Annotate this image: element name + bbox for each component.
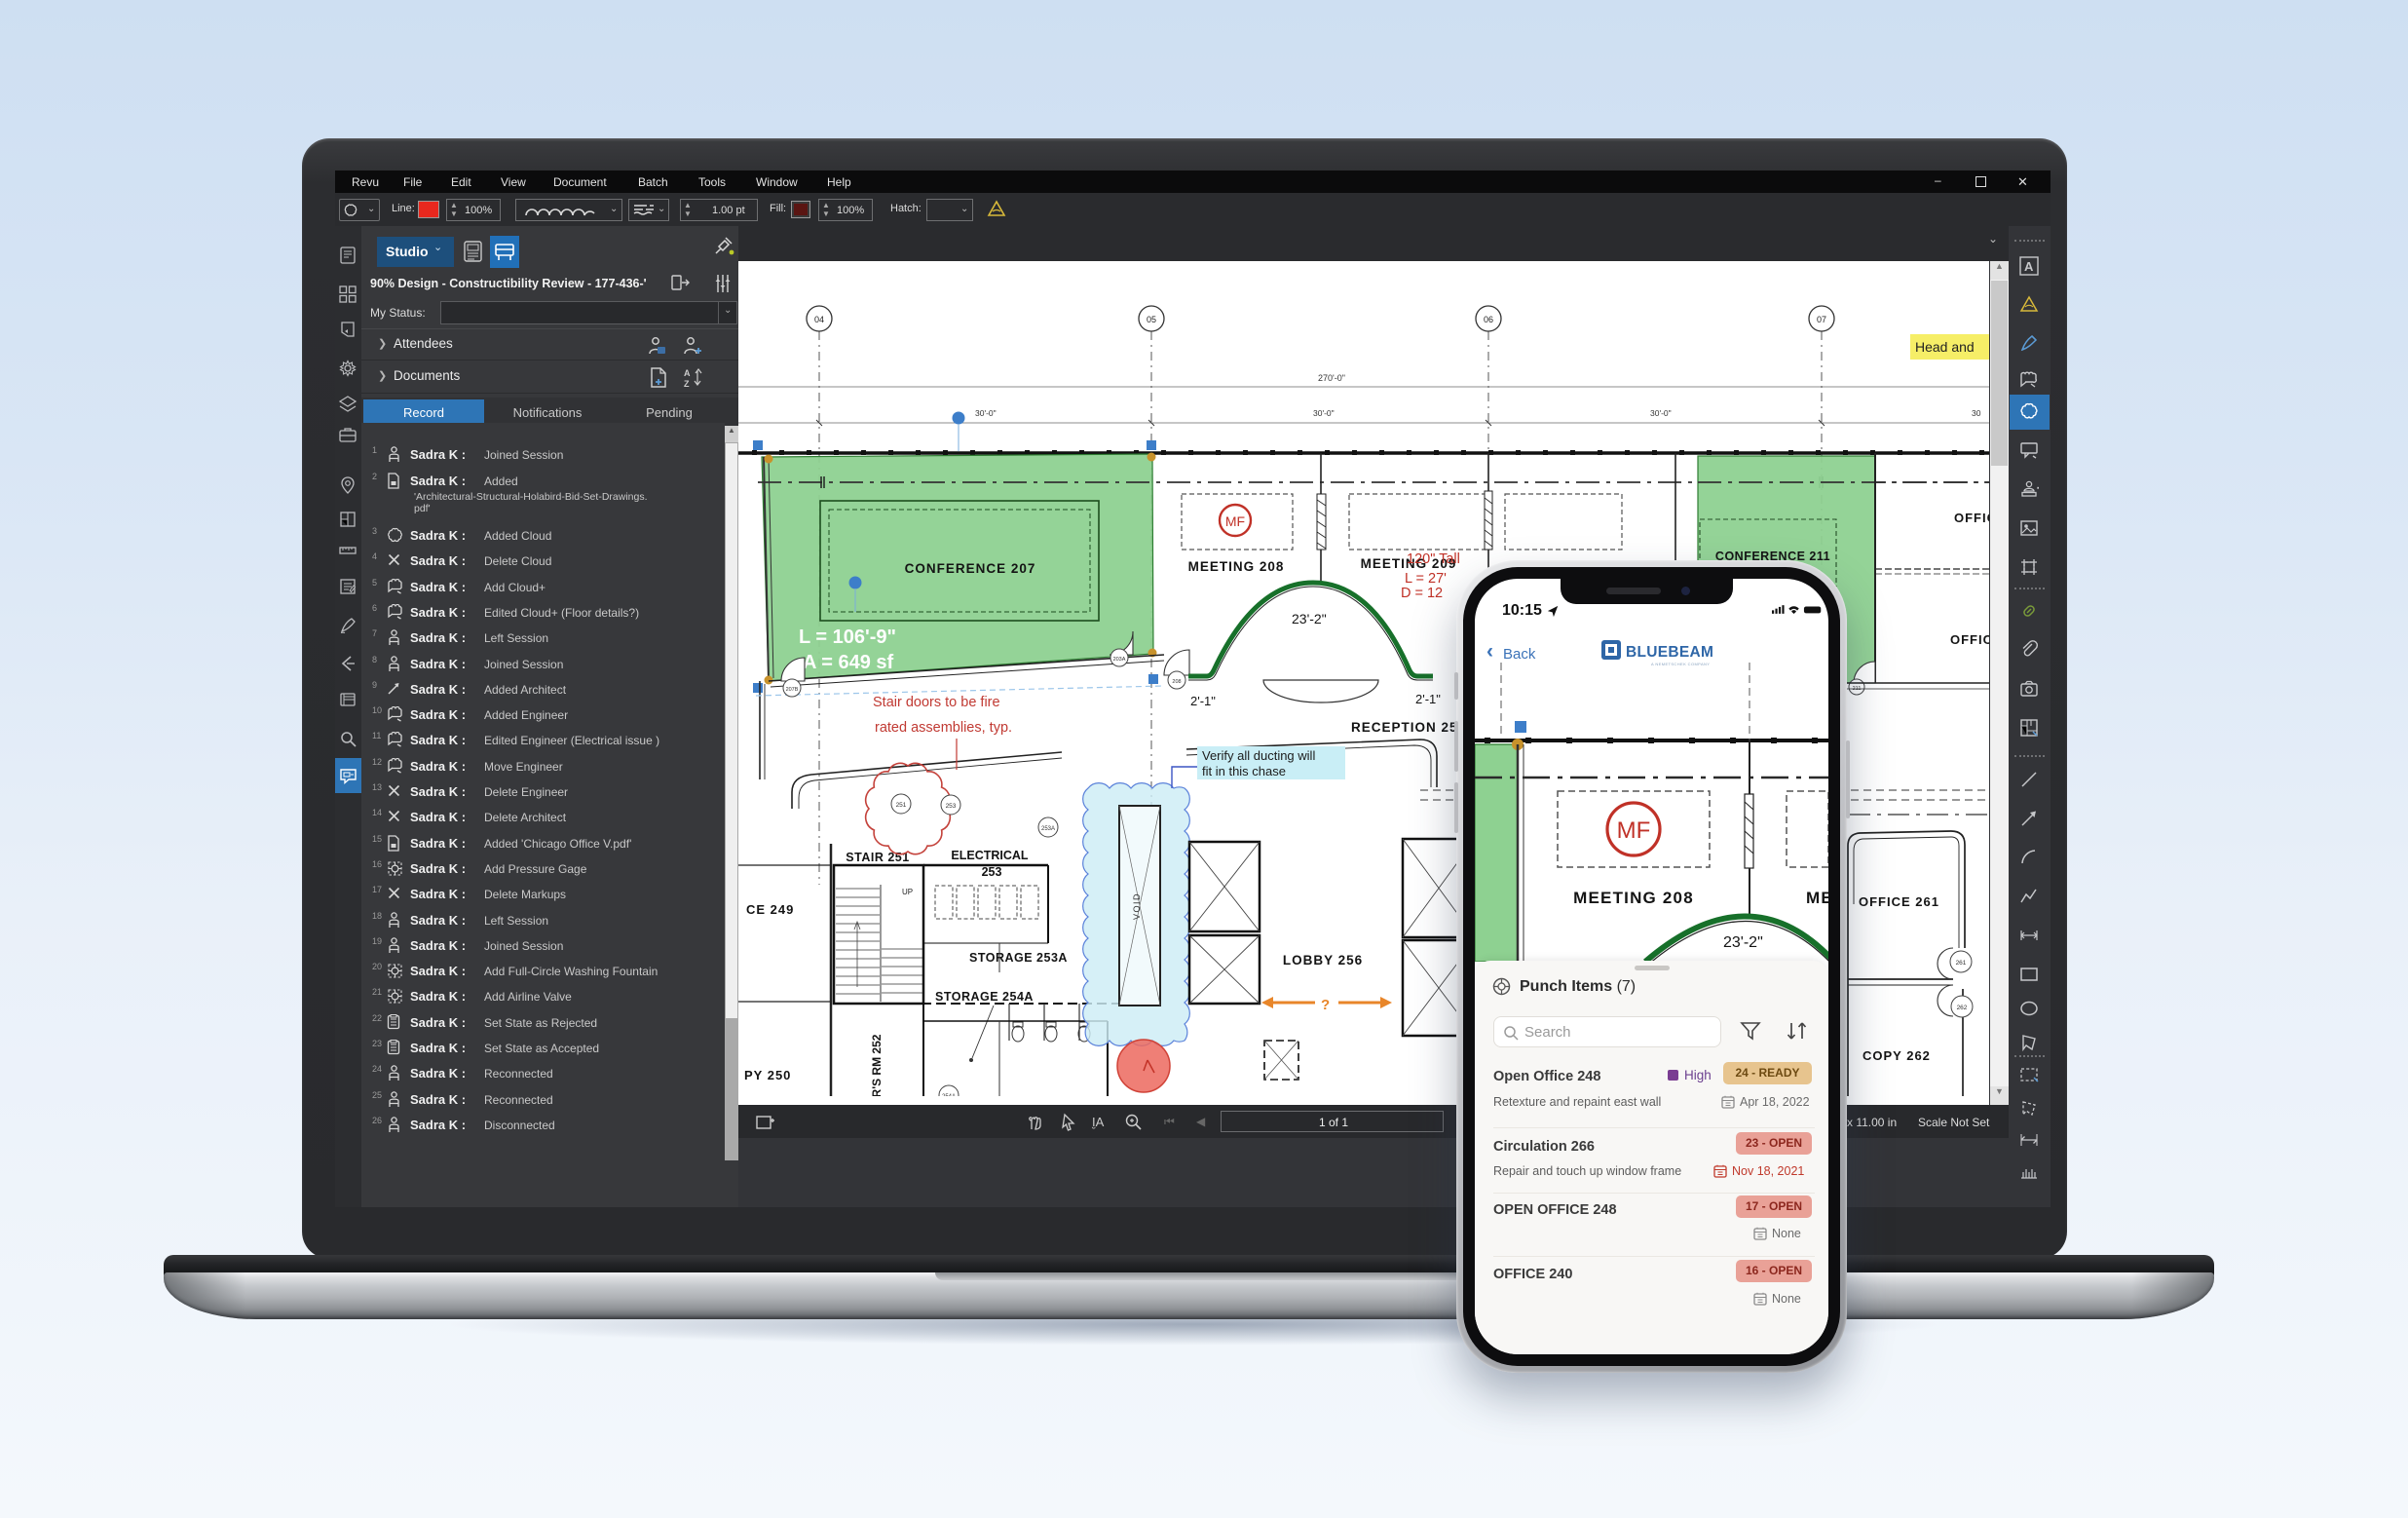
svg-text:251: 251	[896, 802, 907, 809]
svg-text:UP: UP	[902, 888, 913, 896]
svg-text:270'-0": 270'-0"	[1318, 373, 1345, 383]
svg-text:ELECTRICAL: ELECTRICAL	[951, 849, 1029, 862]
svg-text:MF: MF	[1225, 513, 1245, 529]
svg-text:L = 106'-9": L = 106'-9"	[799, 626, 896, 648]
svg-text:254A: 254A	[942, 1094, 956, 1096]
svg-text:208: 208	[1172, 679, 1181, 685]
svg-text:30: 30	[1972, 408, 1981, 418]
svg-text:fit in this chase: fit in this chase	[1202, 764, 1286, 778]
svg-text:COPY 262: COPY 262	[1862, 1048, 1931, 1063]
svg-text:?: ?	[1321, 997, 1330, 1013]
svg-text:A: A	[2024, 259, 2034, 274]
svg-text:OFFICE: OFFICE	[1954, 511, 1989, 525]
svg-text:VOID: VOID	[1132, 892, 1142, 920]
svg-text:Head and: Head and	[1915, 339, 1975, 355]
svg-text:05: 05	[1147, 315, 1156, 324]
svg-text:06: 06	[1484, 315, 1493, 324]
svg-text:253: 253	[946, 803, 957, 810]
svg-text:A = 649 sf: A = 649 sf	[803, 652, 894, 673]
svg-text:30'-0": 30'-0"	[1650, 408, 1672, 418]
svg-text:L = 27': L = 27'	[1405, 571, 1447, 587]
svg-text:207B: 207B	[786, 687, 799, 693]
svg-text:LOBBY 256: LOBBY 256	[1283, 953, 1363, 968]
svg-text:ME: ME	[1806, 889, 1828, 907]
svg-text:rated assemblies, typ.: rated assemblies, typ.	[875, 720, 1012, 736]
svg-text:A: A	[684, 368, 691, 378]
svg-text:PY 250: PY 250	[744, 1068, 791, 1082]
svg-text:STORAGE 254A: STORAGE 254A	[935, 990, 1034, 1004]
svg-text:RECEPTION 255: RECEPTION 255	[1351, 720, 1466, 735]
svg-text:120" Tall: 120" Tall	[1407, 551, 1460, 567]
svg-text:Stair doors to be fire: Stair doors to be fire	[873, 695, 1000, 710]
svg-text:04: 04	[814, 315, 824, 324]
svg-text:CE 249: CE 249	[746, 902, 794, 917]
svg-text:30'-0": 30'-0"	[1313, 408, 1335, 418]
svg-text:2'-1": 2'-1"	[1415, 692, 1441, 706]
svg-text:203A: 203A	[1113, 657, 1126, 663]
svg-text:D = 12: D = 12	[1401, 586, 1443, 601]
svg-text:2'-1": 2'-1"	[1190, 694, 1216, 708]
svg-text:23'-2": 23'-2"	[1723, 934, 1763, 951]
svg-text:23'-2": 23'-2"	[1292, 611, 1327, 626]
svg-text:07: 07	[1817, 315, 1826, 324]
svg-text:STAIR 251: STAIR 251	[846, 851, 909, 864]
svg-text:253A: 253A	[1041, 826, 1055, 832]
svg-text:ER'S RM 252: ER'S RM 252	[870, 1034, 884, 1096]
svg-text:MF: MF	[1617, 817, 1651, 844]
svg-text:262: 262	[1957, 1005, 1968, 1011]
svg-text:OFFICE 261: OFFICE 261	[1859, 894, 1939, 909]
svg-text:MEETING 208: MEETING 208	[1188, 559, 1285, 574]
svg-text:STORAGE 253A: STORAGE 253A	[969, 951, 1068, 965]
svg-text:CONFERENCE 207: CONFERENCE 207	[905, 561, 1036, 576]
svg-text:MEETING 208: MEETING 208	[1573, 889, 1694, 907]
svg-text:253: 253	[982, 865, 1002, 879]
svg-text:OFFICE: OFFICE	[1950, 632, 1989, 647]
svg-text:Verify all ducting will: Verify all ducting will	[1202, 748, 1315, 763]
svg-text:261: 261	[1956, 960, 1967, 967]
svg-text:Z: Z	[684, 379, 690, 389]
svg-text:30'-0": 30'-0"	[975, 408, 997, 418]
